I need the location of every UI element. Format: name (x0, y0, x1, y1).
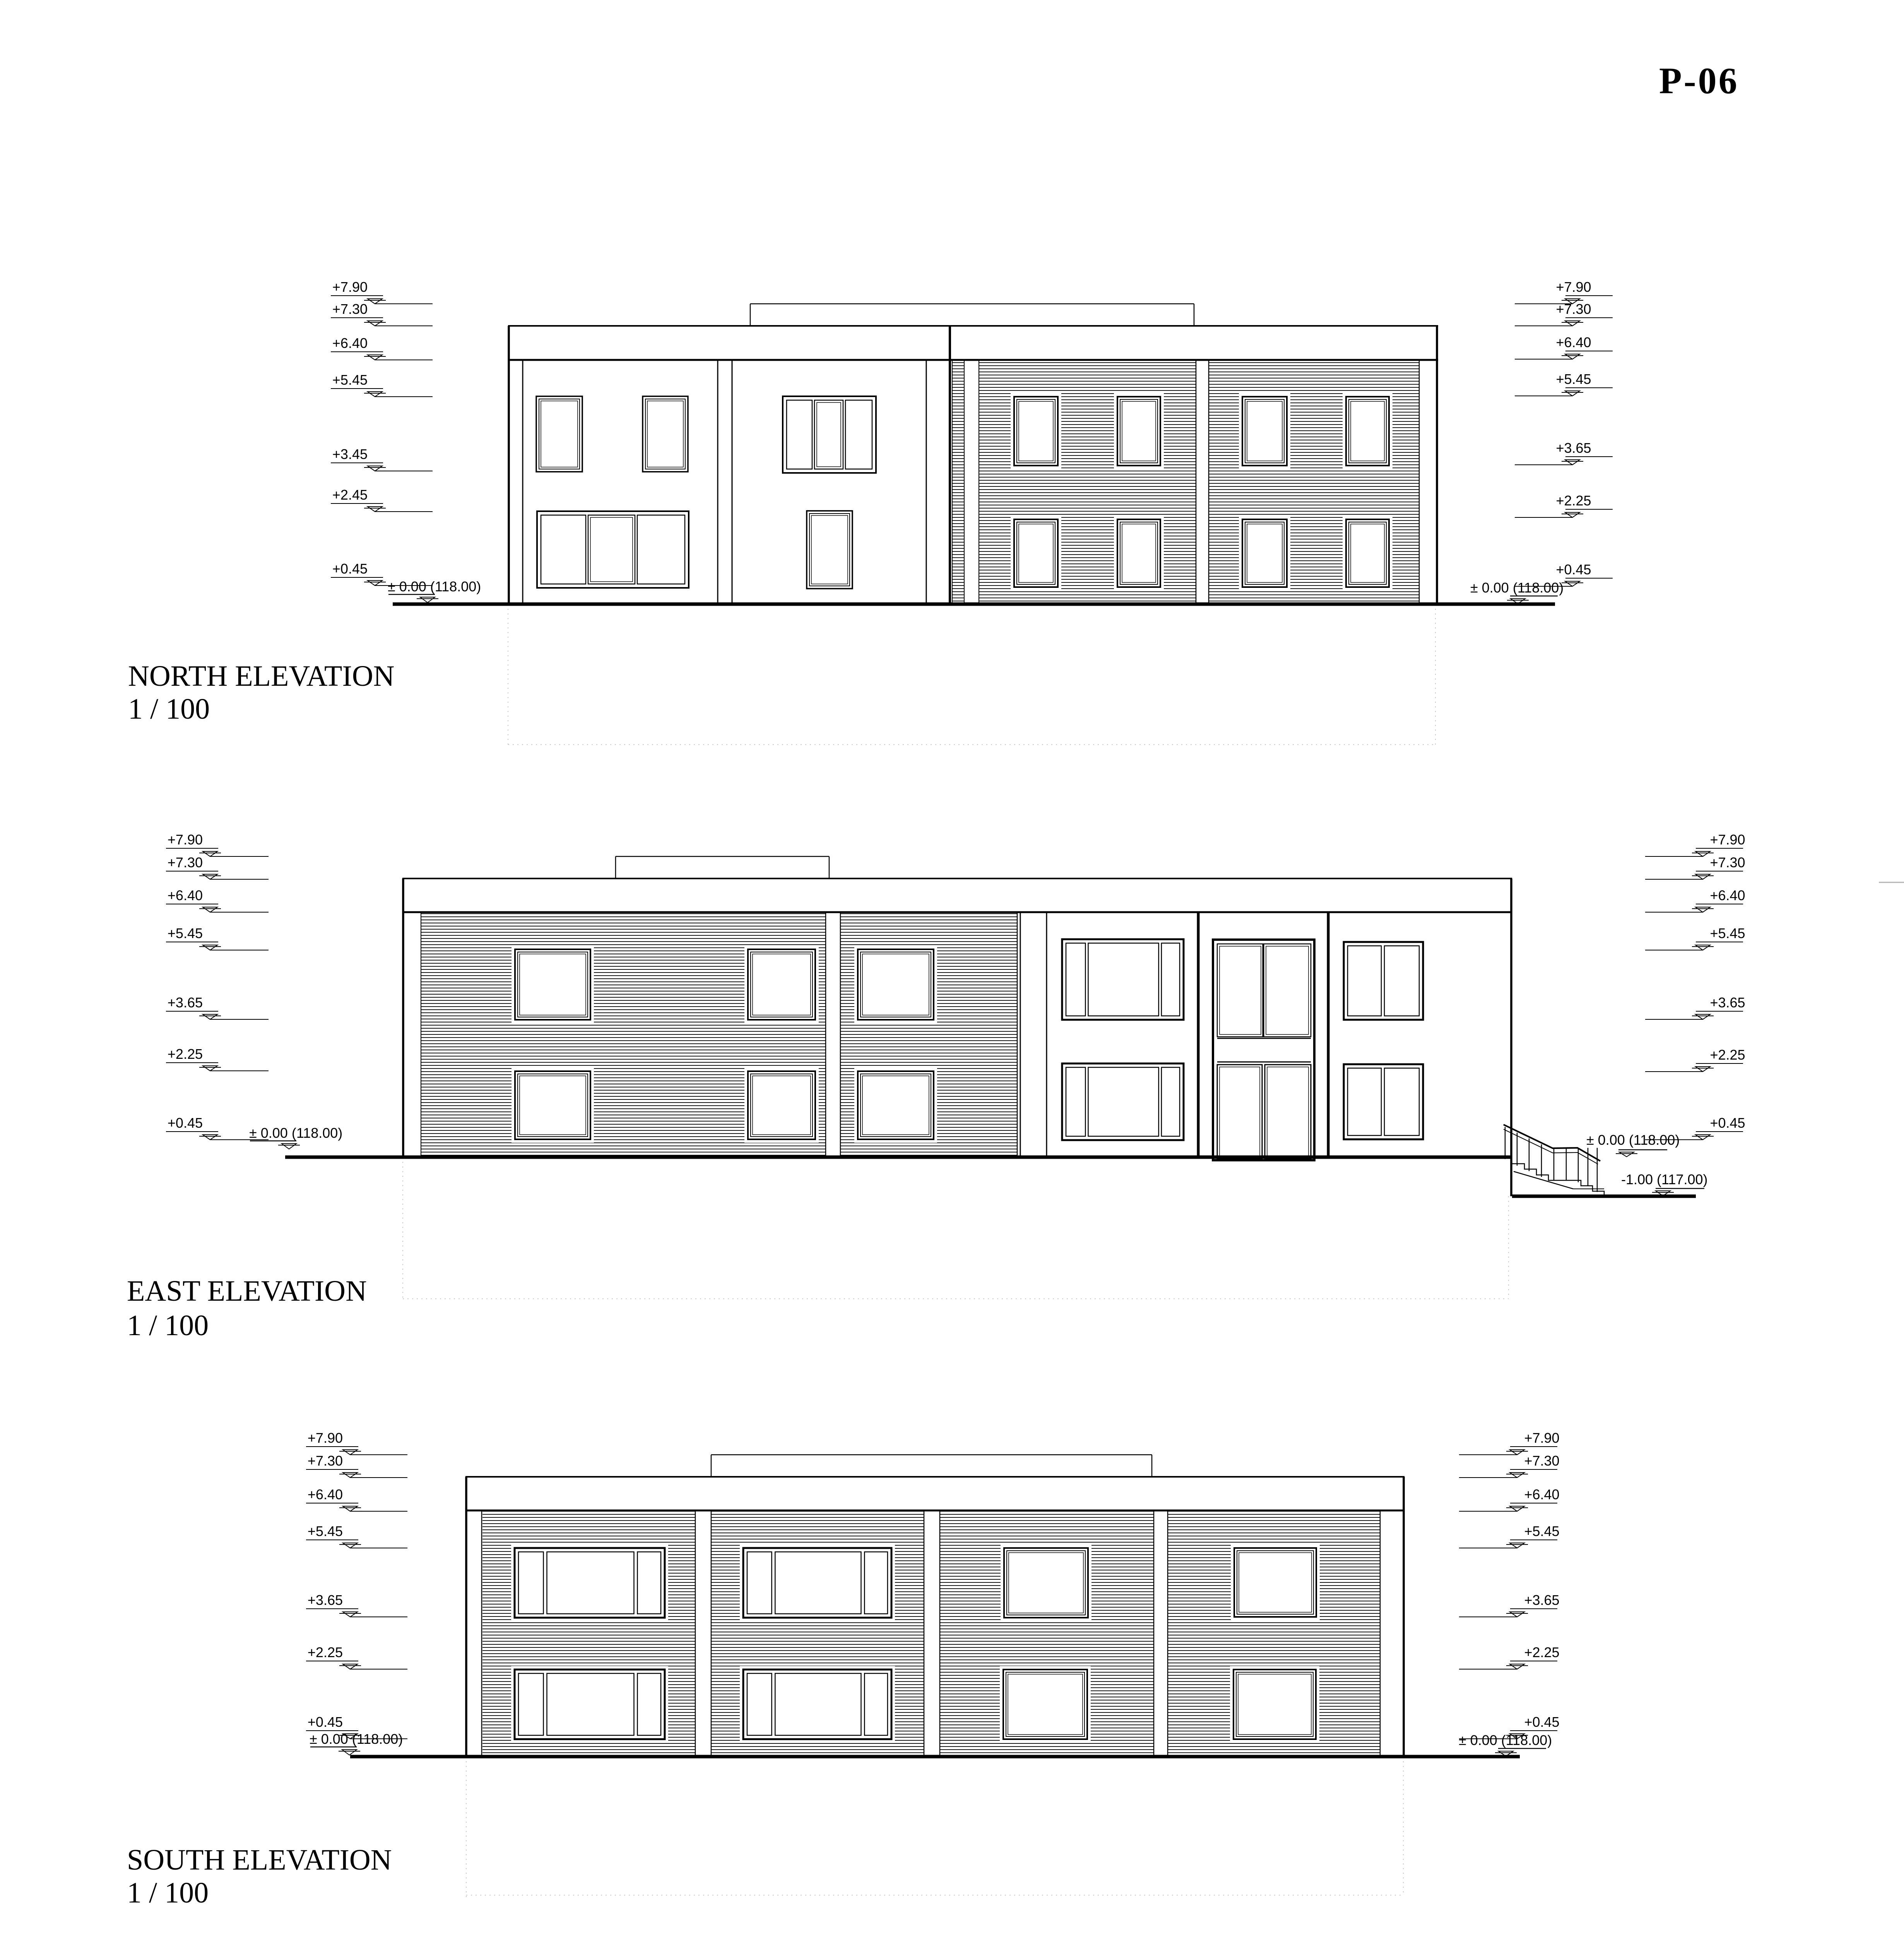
svg-text:+7.30: +7.30 (332, 301, 368, 317)
svg-text:+5.45: +5.45 (1710, 925, 1745, 941)
svg-text:+7.90: +7.90 (1524, 1430, 1559, 1446)
svg-text:1 / 100: 1 / 100 (127, 1309, 209, 1342)
svg-text:+7.90: +7.90 (1556, 279, 1591, 295)
svg-text:+5.45: +5.45 (332, 372, 368, 388)
svg-text:+7.30: +7.30 (168, 854, 203, 870)
svg-text:+6.40: +6.40 (1710, 887, 1745, 903)
svg-text:+3.65: +3.65 (168, 995, 203, 1010)
svg-text:EAST ELEVATION: EAST ELEVATION (127, 1275, 367, 1307)
svg-text:+0.45: +0.45 (1524, 1714, 1559, 1730)
svg-text:+7.30: +7.30 (308, 1453, 343, 1469)
svg-text:+0.45: +0.45 (308, 1714, 343, 1730)
svg-text:+7.90: +7.90 (308, 1430, 343, 1446)
svg-text:1 / 100: 1 / 100 (128, 693, 210, 725)
svg-text:+7.30: +7.30 (1524, 1453, 1559, 1469)
svg-text:+3.65: +3.65 (1524, 1592, 1559, 1608)
svg-text:+6.40: +6.40 (308, 1486, 343, 1502)
svg-text:+3.45: +3.45 (332, 446, 368, 462)
svg-text:+2.25: +2.25 (1710, 1047, 1745, 1063)
svg-text:+2.25: +2.25 (168, 1046, 203, 1062)
svg-text:+0.45: +0.45 (1710, 1115, 1745, 1131)
svg-text:+0.45: +0.45 (332, 561, 368, 577)
svg-text:NORTH ELEVATION: NORTH ELEVATION (128, 660, 395, 692)
svg-text:+5.45: +5.45 (308, 1523, 343, 1539)
svg-text:± 0.00 (118.00): ± 0.00 (118.00) (1586, 1132, 1680, 1148)
svg-text:+2.25: +2.25 (308, 1644, 343, 1660)
svg-text:+6.40: +6.40 (1556, 334, 1591, 350)
svg-text:+7.90: +7.90 (332, 279, 368, 295)
svg-text:+6.40: +6.40 (332, 335, 368, 351)
svg-text:+3.65: +3.65 (1710, 995, 1745, 1010)
svg-text:+3.65: +3.65 (1556, 440, 1591, 456)
svg-text:± 0.00 (118.00): ± 0.00 (118.00) (249, 1125, 342, 1141)
svg-text:+7.90: +7.90 (1710, 832, 1745, 848)
svg-text:+6.40: +6.40 (168, 887, 203, 903)
svg-text:+5.45: +5.45 (1556, 371, 1591, 387)
svg-text:1 / 100: 1 / 100 (127, 1877, 209, 1909)
svg-text:+2.25: +2.25 (1556, 493, 1591, 509)
svg-text:+7.90: +7.90 (168, 832, 203, 848)
svg-text:+5.45: +5.45 (168, 925, 203, 941)
svg-text:+0.45: +0.45 (1556, 562, 1591, 577)
svg-text:+7.30: +7.30 (1556, 301, 1591, 317)
svg-text:P-06: P-06 (1659, 60, 1739, 101)
svg-text:+3.65: +3.65 (308, 1592, 343, 1608)
svg-text:± 0.00 (118.00): ± 0.00 (118.00) (1470, 580, 1564, 596)
svg-text:+2.25: +2.25 (1524, 1644, 1559, 1660)
svg-text:+7.30: +7.30 (1710, 854, 1745, 870)
svg-text:± 0.00 (118.00): ± 0.00 (118.00) (310, 1731, 403, 1747)
svg-text:SOUTH ELEVATION: SOUTH ELEVATION (127, 1844, 392, 1876)
svg-text:+0.45: +0.45 (168, 1115, 203, 1131)
svg-text:+5.45: +5.45 (1524, 1523, 1559, 1539)
svg-text:± 0.00 (118.00): ± 0.00 (118.00) (1459, 1732, 1552, 1748)
svg-text:+6.40: +6.40 (1524, 1486, 1559, 1502)
svg-text:+2.45: +2.45 (332, 487, 368, 503)
svg-text:-1.00 (117.00): -1.00 (117.00) (1621, 1171, 1707, 1187)
svg-text:± 0.00 (118.00): ± 0.00 (118.00) (388, 579, 481, 594)
